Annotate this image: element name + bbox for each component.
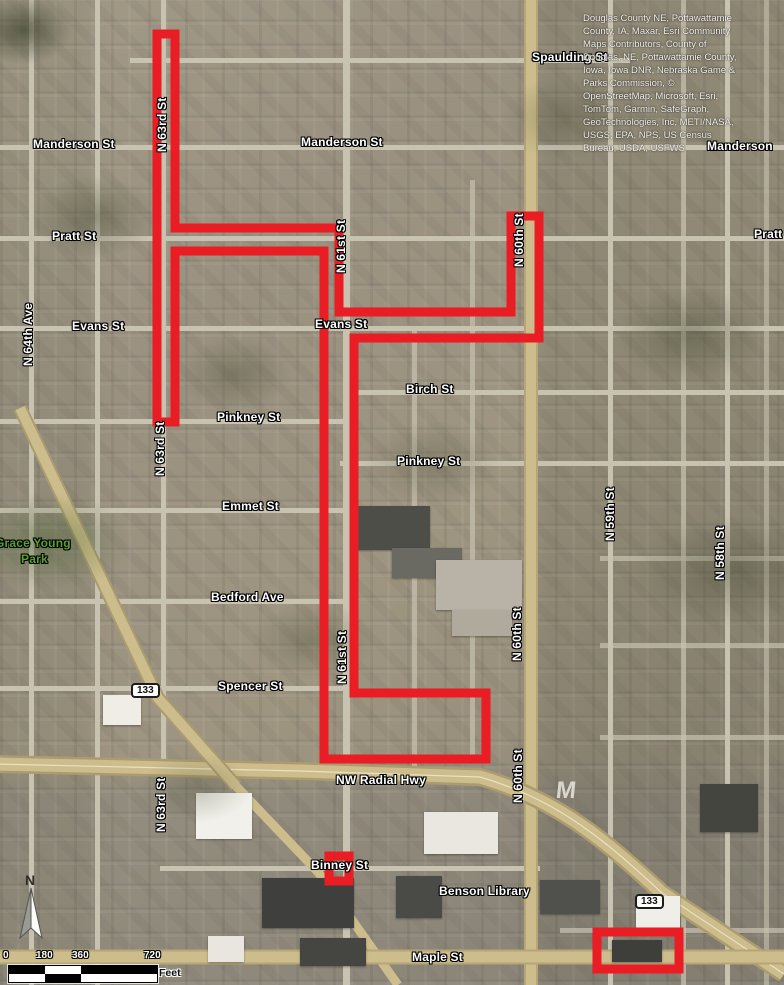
street-label-n63rd-top: N 63rd St	[156, 98, 169, 152]
highway-shield-133-east: 133	[635, 894, 664, 909]
attribution-line: County, IA, Maxar, Esri Community	[583, 25, 783, 38]
scalebar-tick: 360	[72, 950, 89, 961]
street-label-n59th: N 59th St	[604, 487, 617, 541]
street-label-n61st-top: N 61st St	[335, 220, 348, 273]
attribution-line: Iowa, Iowa DNR, Nebraska Game &	[583, 64, 783, 77]
street-label-nw-radial-hwy: NW Radial Hwy	[336, 774, 426, 787]
street-label-n60th-top: N 60th St	[513, 213, 526, 267]
street-label-evans-center: Evans St	[315, 318, 367, 331]
scalebar-tick: 720	[144, 950, 161, 961]
scalebar-unit: Feet	[159, 967, 181, 979]
attribution-line: TomTom, Garmin, SafeGraph,	[583, 103, 783, 116]
street-label-spencer: Spencer St	[218, 680, 283, 693]
street-label-n64th-ave: N 64th Ave	[22, 303, 35, 366]
red-maple-box	[597, 932, 679, 969]
attribution-line: Douglas, NE, Pottawattamie County,	[583, 51, 783, 64]
scalebar-tick: 0	[3, 950, 9, 961]
street-label-bedford: Bedford Ave	[211, 591, 284, 604]
street-label-n58th: N 58th St	[714, 526, 727, 580]
street-label-n63rd-mid: N 63rd St	[154, 422, 167, 476]
scalebar-bar	[8, 965, 158, 983]
street-label-evans-west: Evans St	[72, 320, 124, 333]
street-label-pinkney-west: Pinkney St	[217, 411, 280, 424]
street-label-maple: Maple St	[412, 951, 463, 964]
attribution-line: OpenStreetMap, Microsoft, Esri,	[583, 90, 783, 103]
attribution-line: Douglas County NE, Pottawattamie	[583, 12, 783, 25]
attribution-line: Parks Commission, ©	[583, 77, 783, 90]
gray-m-mark: M	[555, 784, 577, 797]
attribution-line: GeoTechnologies, Inc, METI/NASA,	[583, 116, 783, 129]
street-label-pratt-east: Pratt	[754, 228, 782, 241]
park-label-grace-young: Grace Young	[0, 537, 71, 550]
attribution-line: USGS, EPA, NPS, US Census	[583, 129, 783, 142]
highway-shield-133-west: 133	[131, 683, 160, 698]
poi-label-benson-library: Benson Library	[439, 885, 530, 898]
street-label-pinkney-east: Pinkney St	[397, 455, 460, 468]
park-label-park: Park	[21, 553, 48, 566]
street-label-pratt-west: Pratt St	[52, 230, 96, 243]
street-label-emmet: Emmet St	[222, 500, 279, 513]
street-label-manderson-west: Manderson St	[33, 138, 115, 151]
north-arrow-label: N	[25, 872, 35, 888]
north-arrow: N	[6, 872, 50, 944]
scalebar-tick: 180	[36, 950, 53, 961]
street-label-n60th-mid: N 60th St	[511, 607, 524, 661]
street-label-n60th-south: N 60th St	[512, 749, 525, 803]
street-label-n61st-mid: N 61st St	[336, 631, 349, 684]
map-canvas: Manderson StManderson StMandersonSpauldi…	[0, 0, 784, 985]
attribution-block: Douglas County NE, PottawattamieCounty, …	[583, 12, 783, 155]
street-label-n63rd-south: N 63rd St	[155, 778, 168, 832]
attribution-line: Maps Contributors, County of	[583, 38, 783, 51]
street-label-birch: Birch St	[406, 383, 454, 396]
attribution-line: Bureau, USDA, USFWS	[583, 142, 783, 155]
street-label-binney: Binney St	[311, 859, 368, 872]
street-label-manderson-center: Manderson St	[301, 136, 383, 149]
